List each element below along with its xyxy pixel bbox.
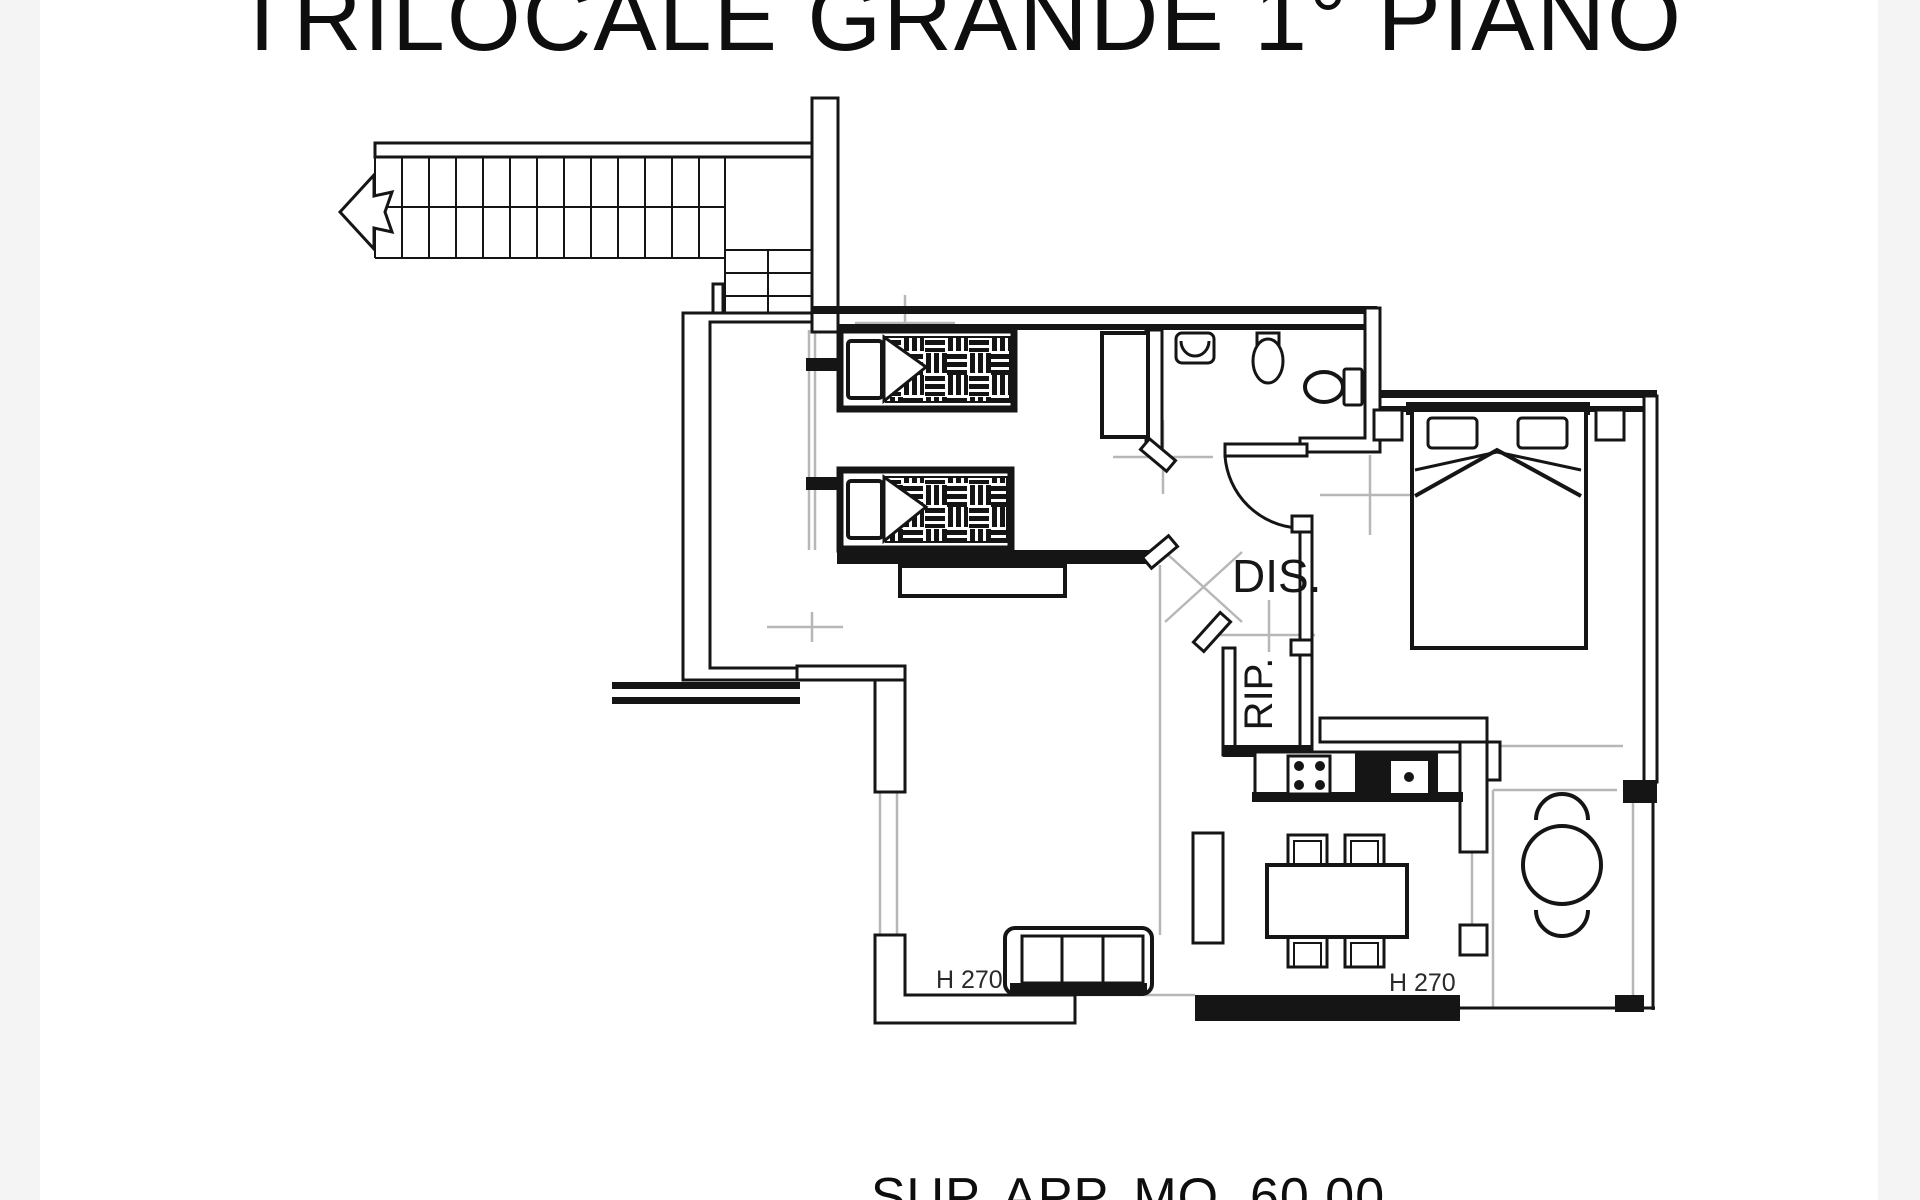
wardrobe [1102, 333, 1148, 437]
sofa [1005, 928, 1152, 994]
page-edge-left [0, 0, 40, 1200]
ceiling-height-dining: H 270 [1389, 969, 1456, 997]
staircase [375, 143, 812, 313]
area-caption: SUP. APP. MQ. 60,00 [871, 1168, 1385, 1200]
console-table [900, 566, 1065, 596]
bidet-icon [1253, 333, 1283, 383]
bathroom-door [1225, 444, 1312, 532]
single-bed-2 [840, 470, 1011, 549]
plan-title: TRILOCALE GRANDE 1° PIANO [233, 0, 1683, 71]
bathroom-sink-icon [1176, 333, 1214, 363]
double-bed [1406, 402, 1590, 648]
exit-arrow-icon [340, 175, 392, 249]
floor-plan-drawing: TRILOCALE GRANDE 1° PIANO SUP. APP. MQ. … [0, 0, 1920, 1200]
page-edge-right [1878, 0, 1920, 1200]
sideboard [1193, 833, 1223, 943]
nightstand-right [1596, 410, 1624, 440]
label-storage: RIP. [1237, 658, 1281, 731]
label-hallway: DIS. [1232, 550, 1321, 602]
nightstand-left [1374, 410, 1402, 440]
ceiling-height-living: H 270 [936, 966, 1003, 994]
single-bed-1 [840, 330, 1014, 409]
kitchen-sink-icon [1355, 752, 1438, 798]
stove-icon [1288, 756, 1330, 794]
toilet-icon [1305, 369, 1362, 405]
dining-table [1267, 835, 1407, 967]
balcony-round-table [1523, 794, 1601, 936]
floor-plan-page: TRILOCALE GRANDE 1° PIANO SUP. APP. MQ. … [0, 0, 1920, 1200]
